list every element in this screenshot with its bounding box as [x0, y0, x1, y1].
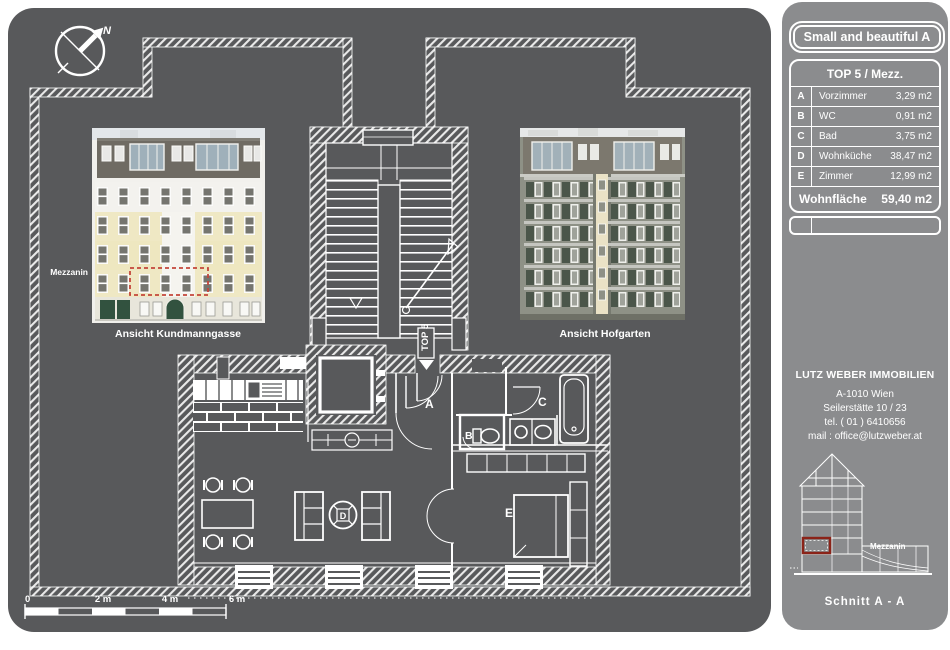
scale-tick-6m: 6 m: [229, 594, 245, 605]
section-drawing: Mezzanin: [790, 450, 940, 592]
compass-icon: N: [56, 23, 112, 75]
scale-tick-0: 0: [25, 594, 30, 605]
room-label-e: E: [505, 506, 513, 520]
section-floor-label: Mezzanin: [870, 542, 906, 551]
room-letter: C: [791, 127, 812, 146]
table-row: C Bad 3,75 m2: [791, 126, 939, 146]
contact-address-line: A-1010 Wien: [782, 388, 948, 402]
room-area: 38,47 m2: [890, 147, 939, 166]
table-row: E Zimmer 12,99 m2: [791, 166, 939, 186]
total-area-row: Wohnfläche 59,40 m2: [791, 186, 939, 211]
table-footer-divider: [811, 218, 812, 233]
room-label-c: C: [538, 395, 547, 409]
room-name: Bad: [812, 127, 896, 146]
contact-phone: tel. ( 01 ) 6410656: [782, 416, 948, 430]
facade-caption-hofgarten: Ansicht Hofgarten: [559, 328, 650, 340]
room-area: 12,99 m2: [890, 167, 939, 186]
unit-label: TOP 5: [420, 323, 431, 351]
page: N: [0, 0, 950, 650]
total-area-label: Wohnfläche: [791, 192, 867, 206]
table-row: A Vorzimmer 3,29 m2: [791, 86, 939, 106]
total-area-value: 59,40 m2: [881, 192, 939, 206]
table-row: D Wohnküche 38,47 m2: [791, 146, 939, 166]
room-area: 0,91 m2: [896, 107, 939, 126]
room-table: TOP 5 / Mezz. A Vorzimmer 3,29 m2 B WC 0…: [789, 59, 941, 213]
elevator: [306, 345, 386, 424]
scale-tick-2m: 2 m: [95, 594, 111, 605]
room-area: 3,29 m2: [896, 87, 939, 106]
compass-north-label: N: [103, 25, 112, 37]
room-labels: A B C E: [425, 395, 547, 520]
facade-caption-kundmanngasse: Ansicht Kundmanngasse: [115, 328, 241, 340]
room-label-a: A: [425, 397, 434, 411]
project-title: Small and beautiful A: [793, 25, 941, 49]
room-table-header: TOP 5 / Mezz.: [791, 61, 939, 86]
staircase: [310, 127, 468, 350]
floor-plan-drawing: N: [8, 8, 771, 632]
room-label-d: D: [340, 511, 347, 521]
company-name: LUTZ WEBER IMMOBILIEN: [782, 368, 948, 382]
room-letter: B: [791, 107, 812, 126]
contact-address-line: Seilerstätte 10 / 23: [782, 402, 948, 416]
room-name: Vorzimmer: [812, 87, 896, 106]
room-label-b: B: [465, 430, 473, 442]
room-name: Wohnküche: [812, 147, 890, 166]
kitchen: [193, 380, 308, 442]
bathroom-fixtures: [473, 375, 588, 445]
facade-image-kundmanngasse: [92, 128, 265, 323]
dining-set: [202, 478, 253, 549]
contact-email: mail : office@lutzweber.at: [782, 430, 948, 444]
plan-canvas: N: [8, 8, 771, 632]
room-name: WC: [812, 107, 896, 126]
contact-block: LUTZ WEBER IMMOBILIEN A-1010 Wien Seiler…: [782, 368, 948, 444]
scale-tick-4m: 4 m: [162, 594, 178, 605]
table-footer-box: [789, 216, 941, 235]
room-letter: D: [791, 147, 812, 166]
room-letter: A: [791, 87, 812, 106]
bedroom-furniture: [467, 454, 587, 566]
unit-entrance-tag: TOP 5: [418, 323, 434, 370]
mezzanin-floor-label: Mezzanin: [50, 267, 88, 277]
meter-box: [312, 430, 392, 450]
sidebar: Small and beautiful A TOP 5 / Mezz. A Vo…: [782, 2, 948, 630]
room-area: 3,75 m2: [896, 127, 939, 146]
table-row: B WC 0,91 m2: [791, 106, 939, 126]
room-letter: E: [791, 167, 812, 186]
project-title-box: Small and beautiful A: [789, 21, 945, 53]
facade-image-hofgarten: [520, 128, 685, 320]
section-caption: Schnitt A - A: [782, 596, 948, 608]
room-name: Zimmer: [812, 167, 890, 186]
entrance-arrow-icon: [419, 360, 434, 370]
